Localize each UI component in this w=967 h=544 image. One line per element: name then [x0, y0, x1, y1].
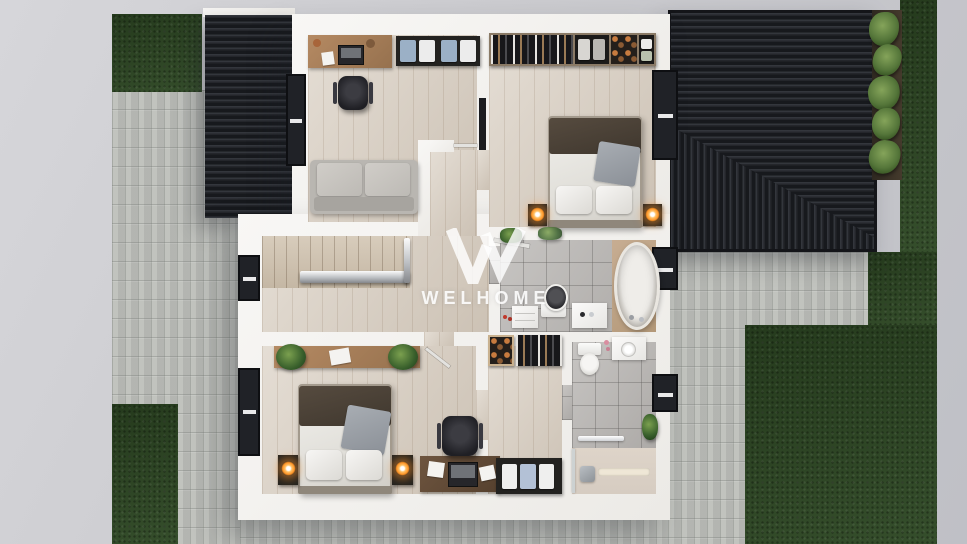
grass-right-large [745, 325, 937, 544]
master-door-opening [477, 150, 489, 190]
bedroom2-bed [298, 384, 392, 494]
hanging-greenery [538, 227, 562, 240]
office-papers [321, 51, 335, 66]
stair-railing [300, 271, 410, 283]
sink-faucet [589, 312, 594, 317]
bedding-stack [460, 40, 476, 62]
linen-stack [641, 39, 652, 49]
closet-linen-cabinet [496, 458, 562, 494]
linen-shelf [639, 35, 654, 64]
bed-throw [341, 405, 392, 456]
stair-railing-post [404, 238, 410, 283]
office-balcony-door [286, 74, 306, 166]
shower-fixture [580, 466, 595, 482]
bath-decor-red [508, 317, 512, 321]
hanging-clothes [491, 35, 573, 64]
towel-rail [578, 436, 624, 441]
bed-throw [593, 141, 641, 187]
office-bedding-shelf [396, 36, 480, 66]
table-lamp [395, 461, 410, 476]
linen-stack [539, 464, 554, 489]
tub-faucet [639, 317, 644, 322]
sink-basin [621, 342, 636, 357]
vanity-decor-pink [604, 340, 609, 345]
bedroom2-laptop [448, 462, 478, 487]
desk-decor [366, 39, 375, 48]
floorplan-render: WELHOME [0, 0, 967, 544]
window-sash [658, 268, 673, 272]
desk-papers [427, 461, 445, 478]
bed-headboard [298, 486, 392, 494]
landing-window [238, 255, 260, 301]
bedroom2-window [238, 368, 260, 456]
closet-hanging-rail [516, 335, 562, 366]
shower-linear-drain [598, 468, 650, 476]
clothes-stack [578, 39, 590, 60]
bathroom1-door-opening [489, 246, 500, 284]
bath-decor-red [503, 315, 507, 319]
table-lamp [281, 461, 296, 476]
office-sofa [310, 160, 418, 214]
table-lamp [530, 207, 545, 222]
grass-right-top-strip [900, 0, 937, 252]
window-sash [658, 114, 673, 118]
bathroom1-dresser [512, 306, 538, 328]
closet-shoe-shelf [488, 335, 514, 366]
window-sash [243, 277, 256, 281]
office-inner-wall [418, 140, 430, 236]
clothes-stack [593, 39, 605, 60]
grass-right-corner [868, 252, 937, 325]
master-wardrobe [489, 33, 656, 66]
bedding-stack [400, 40, 416, 62]
tub-faucet [629, 315, 634, 320]
right-roof-lower-slope [671, 13, 874, 249]
bed-headboard [548, 220, 642, 228]
right-hip-roof [668, 10, 877, 252]
linen-stack [502, 464, 517, 489]
bathroom1-vanity [572, 303, 607, 328]
freestanding-bathtub [614, 242, 660, 330]
vanity-decor-pink [606, 347, 610, 351]
toilet2 [580, 353, 599, 375]
master-bed [548, 116, 642, 228]
office-glass-door [454, 144, 477, 147]
paving-under-roof [668, 252, 868, 325]
bathroom2-window [652, 374, 678, 412]
shower-glass-door [572, 449, 575, 493]
office-chair [338, 76, 368, 110]
console-plant [388, 344, 418, 370]
door-vestibule-floor [430, 150, 477, 236]
wardrobe-shoes [611, 35, 637, 64]
bathroom1-plant [500, 228, 522, 243]
toilet [544, 284, 568, 311]
bedroom2-door-opening [424, 332, 454, 346]
window-sash [290, 119, 302, 123]
sink-drain [580, 312, 585, 317]
pillow [346, 450, 382, 480]
desk-decor [313, 39, 321, 47]
folded-clothes [575, 35, 609, 64]
pillow [596, 186, 632, 214]
master-bedroom-window [652, 70, 678, 160]
linen-stack [641, 51, 652, 61]
linen-stack [520, 464, 536, 489]
grass-top-left [112, 14, 202, 92]
window-sash [243, 410, 256, 414]
bathroom2-plant [642, 414, 658, 440]
window-sash [658, 393, 673, 397]
drawer-line [515, 313, 535, 314]
left-flat-roof [205, 15, 292, 218]
sofa-cushion [317, 163, 362, 196]
office-door-jamb [430, 140, 454, 152]
bedroom2-chair [442, 416, 478, 456]
master-wall-tv [479, 98, 486, 150]
bathroom2-door-opening [562, 385, 572, 420]
bathroom2-vanity [612, 337, 646, 360]
sofa-cushion [365, 163, 410, 196]
bedding-stack [419, 40, 435, 62]
pillow [306, 450, 342, 480]
shoe-rows [490, 337, 512, 364]
pillow [556, 186, 592, 214]
grass-bottom-left [112, 404, 178, 544]
sofa-backrest [314, 197, 414, 211]
drawer-line [515, 320, 535, 321]
office-laptop [338, 45, 364, 65]
table-lamp [645, 207, 660, 222]
console-plant [276, 344, 306, 370]
bedding-stack [441, 40, 457, 62]
